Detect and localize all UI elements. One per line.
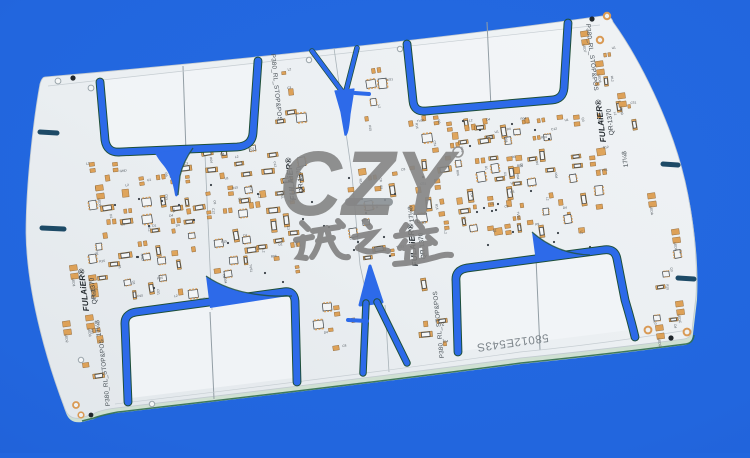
svg-text:D1: D1 — [172, 208, 177, 213]
svg-text:D4: D4 — [444, 339, 449, 344]
svg-text:U1: U1 — [147, 178, 152, 183]
svg-text:D1: D1 — [118, 265, 123, 270]
svg-text:D4: D4 — [324, 330, 329, 335]
svg-text:R12: R12 — [610, 76, 615, 83]
svg-text:C51: C51 — [630, 100, 637, 105]
svg-text:C12: C12 — [273, 161, 278, 168]
svg-text:R9: R9 — [535, 222, 540, 227]
svg-text:D4: D4 — [220, 152, 225, 157]
svg-text:D4: D4 — [563, 205, 568, 210]
svg-text:U1: U1 — [612, 46, 617, 51]
svg-text:C3: C3 — [504, 204, 509, 209]
svg-text:R15: R15 — [157, 276, 164, 281]
svg-text:R04: R04 — [520, 116, 527, 121]
svg-text:R04: R04 — [515, 173, 520, 180]
svg-text:D1: D1 — [109, 214, 114, 219]
svg-text:D4: D4 — [535, 161, 540, 166]
svg-text:R04: R04 — [455, 170, 460, 177]
svg-text:D1: D1 — [278, 242, 283, 247]
svg-text:C12: C12 — [211, 208, 216, 215]
svg-text:C51: C51 — [156, 289, 161, 296]
svg-text:Q3: Q3 — [653, 320, 658, 325]
svg-text:D4: D4 — [470, 193, 475, 198]
svg-text:U1: U1 — [494, 130, 499, 135]
svg-text:R9: R9 — [437, 119, 442, 124]
svg-text:R15: R15 — [99, 259, 106, 264]
svg-text:R04: R04 — [554, 172, 559, 179]
svg-text:D1: D1 — [484, 166, 489, 171]
svg-text:R12: R12 — [249, 185, 254, 192]
svg-text:Q3: Q3 — [519, 163, 524, 168]
svg-text:D4: D4 — [176, 223, 181, 228]
svg-text:C8: C8 — [213, 200, 218, 205]
svg-text:R9: R9 — [164, 172, 169, 177]
svg-text:C12: C12 — [551, 127, 558, 132]
svg-text:R12: R12 — [603, 145, 610, 150]
svg-text:CZY: CZY — [279, 133, 460, 235]
svg-text:U1: U1 — [564, 118, 569, 123]
svg-text:D1: D1 — [237, 197, 242, 202]
svg-text:D4: D4 — [673, 324, 678, 329]
svg-text:R15: R15 — [368, 125, 373, 132]
svg-text:D1: D1 — [490, 202, 495, 207]
svg-text:R15: R15 — [665, 284, 670, 291]
svg-text:C3: C3 — [287, 86, 292, 91]
svg-text:R04: R04 — [541, 135, 548, 140]
svg-text:Q3: Q3 — [669, 267, 674, 272]
svg-text:R04: R04 — [223, 277, 228, 284]
svg-text:C3: C3 — [510, 190, 515, 195]
svg-text:R15: R15 — [137, 294, 144, 299]
svg-text:C8: C8 — [342, 344, 347, 349]
svg-text:R12: R12 — [486, 136, 493, 141]
svg-text:R04: R04 — [504, 136, 509, 143]
svg-text:D1: D1 — [243, 233, 248, 238]
svg-text:D1: D1 — [95, 251, 100, 256]
svg-text:R15: R15 — [414, 123, 419, 130]
svg-text:D1: D1 — [131, 280, 136, 285]
svg-text:D4: D4 — [507, 127, 512, 132]
svg-text:C51: C51 — [164, 194, 169, 201]
svg-text:D4: D4 — [486, 117, 491, 122]
svg-text:Q3: Q3 — [581, 117, 586, 122]
svg-text:R04: R04 — [209, 157, 214, 164]
svg-text:D1: D1 — [152, 223, 157, 228]
svg-text:D1: D1 — [503, 172, 508, 177]
svg-text:R15: R15 — [232, 185, 239, 190]
svg-text:C3: C3 — [121, 222, 126, 227]
svg-text:R04: R04 — [271, 254, 278, 259]
svg-text:D4: D4 — [169, 213, 174, 218]
svg-text:C8: C8 — [222, 274, 227, 279]
svg-text:U1: U1 — [224, 176, 229, 181]
svg-text:R15: R15 — [221, 239, 228, 244]
